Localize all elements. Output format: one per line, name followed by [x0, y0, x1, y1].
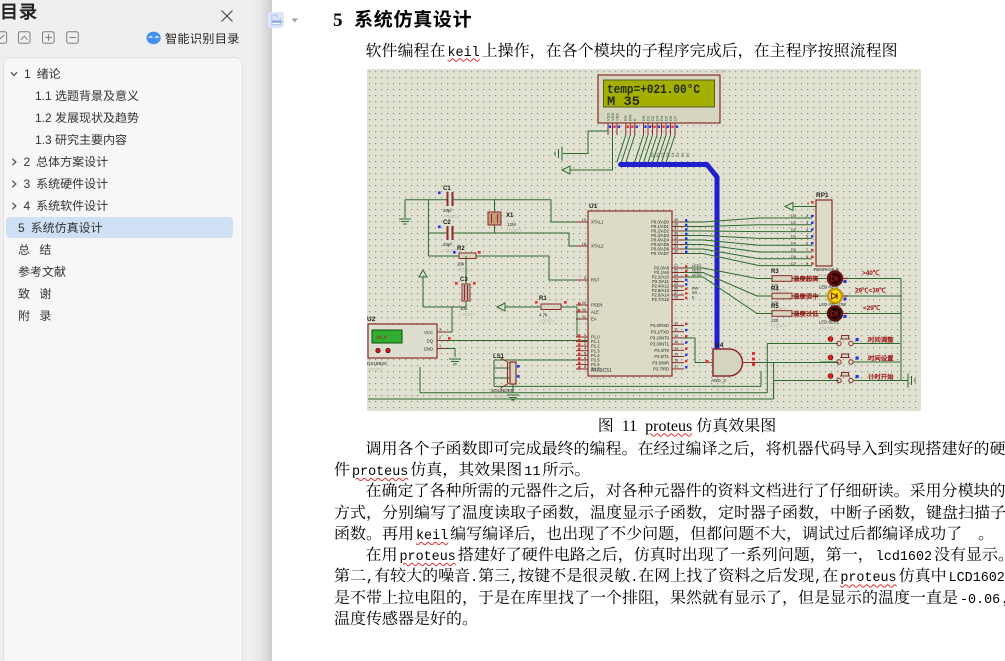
svg-text:10: 10	[674, 322, 678, 326]
svg-text:220: 220	[771, 318, 779, 323]
svg-text:21: 21	[674, 264, 678, 268]
svg-text:R3: R3	[771, 269, 779, 275]
svg-text:P3.3/INT1: P3.3/INT1	[650, 342, 670, 347]
svg-text:P3.5/T1: P3.5/T1	[654, 354, 669, 359]
svg-text:17: 17	[674, 365, 678, 369]
svg-text:EA: EA	[591, 317, 597, 322]
svg-text:R2: R2	[457, 246, 465, 252]
svg-text:RST: RST	[591, 278, 600, 283]
svg-text:C3: C3	[460, 277, 468, 283]
svg-text:<TEXT>: <TEXT>	[493, 394, 509, 399]
svg-text:11: 11	[674, 328, 678, 332]
svg-text:D0: D0	[651, 153, 655, 157]
svg-text:LED2: LED2	[692, 269, 702, 273]
svg-text:P3.2/INT0: P3.2/INT0	[650, 336, 670, 341]
svg-text:时间调整: 时间调整	[868, 336, 894, 344]
svg-text:P3.4/T0: P3.4/T0	[654, 348, 669, 353]
svg-text:VEE: VEE	[614, 113, 619, 121]
svg-text:2: 2	[439, 336, 441, 340]
svg-text:U1: U1	[589, 203, 598, 210]
svg-text:27: 27	[674, 291, 678, 295]
svg-text:9: 9	[806, 262, 808, 266]
svg-text:4: 4	[584, 347, 586, 351]
svg-text:15: 15	[674, 353, 678, 357]
svg-text:<TEXT>: <TEXT>	[539, 319, 555, 324]
svg-text:<29℃: <29℃	[863, 304, 881, 312]
svg-text:>40℃: >40℃	[862, 269, 880, 277]
svg-text:D3: D3	[666, 153, 670, 157]
svg-text:2: 2	[584, 338, 586, 342]
svg-text:<TEXT>: <TEXT>	[771, 324, 787, 329]
svg-text:E: E	[632, 118, 637, 121]
svg-text:温度超高: 温度超高	[793, 275, 819, 283]
svg-text:7: 7	[584, 360, 586, 364]
svg-text:D5: D5	[791, 248, 796, 252]
svg-text:18: 18	[582, 242, 586, 246]
svg-text:D2: D2	[791, 228, 796, 232]
svg-text:LED3: LED3	[692, 273, 702, 277]
svg-text:C1: C1	[443, 186, 451, 192]
svg-text:6: 6	[806, 241, 808, 245]
svg-text:P3.6/WR: P3.6/WR	[652, 360, 669, 365]
svg-text:RS: RS	[692, 291, 698, 295]
svg-text:10k: 10k	[457, 262, 465, 267]
svg-text:P3.0/RXD: P3.0/RXD	[650, 323, 669, 328]
svg-text:P2.7/A15: P2.7/A15	[652, 297, 670, 302]
svg-text:1: 1	[807, 202, 809, 206]
svg-text:16: 16	[674, 359, 678, 363]
svg-text:RW: RW	[692, 287, 699, 291]
svg-text:XTAL2: XTAL2	[591, 244, 604, 249]
svg-text:D6: D6	[791, 255, 796, 259]
svg-text:12: 12	[674, 334, 678, 338]
svg-text:P1.7: P1.7	[591, 367, 600, 372]
svg-text:D3: D3	[791, 235, 796, 239]
svg-text:<TEXT>: <TEXT>	[711, 384, 727, 389]
svg-text:34: 34	[674, 241, 678, 245]
svg-text:PSEN: PSEN	[591, 303, 602, 308]
svg-text:37: 37	[674, 227, 678, 231]
svg-text:9: 9	[584, 276, 586, 280]
svg-text:D7: D7	[672, 115, 677, 121]
svg-text:M 35: M 35	[607, 95, 640, 109]
svg-text:36: 36	[674, 232, 678, 236]
svg-text:U2: U2	[367, 316, 376, 323]
svg-text:ALE: ALE	[591, 310, 599, 315]
svg-text:LED-BLUE: LED-BLUE	[819, 320, 840, 325]
svg-text:X1: X1	[506, 213, 514, 219]
svg-text:VCC: VCC	[424, 330, 433, 335]
svg-text:3: 3	[584, 342, 586, 346]
svg-text:33: 33	[674, 245, 678, 249]
svg-text:D7: D7	[686, 153, 690, 157]
svg-text:5: 5	[806, 235, 808, 239]
svg-text:8: 8	[584, 365, 586, 369]
svg-text:19: 19	[582, 218, 586, 222]
svg-text:2: 2	[806, 214, 808, 218]
svg-text:20pf: 20pf	[443, 208, 452, 213]
svg-text:<TEXT>: <TEXT>	[443, 214, 459, 219]
svg-text:39: 39	[674, 218, 678, 222]
svg-text:温度过低: 温度过低	[793, 310, 819, 318]
svg-text:3: 3	[806, 221, 808, 225]
svg-text:温度适中: 温度适中	[793, 292, 819, 301]
svg-text:13: 13	[674, 340, 678, 344]
svg-text:D4: D4	[791, 241, 796, 245]
svg-text:D0: D0	[791, 214, 796, 218]
svg-text:R4: R4	[771, 287, 779, 293]
svg-text:D2: D2	[661, 153, 665, 157]
svg-text:D1: D1	[791, 221, 796, 225]
svg-text:LS1: LS1	[493, 354, 505, 360]
svg-text:<TEXT>: <TEXT>	[460, 312, 476, 317]
svg-text:23: 23	[674, 273, 678, 277]
svg-text:24: 24	[674, 278, 678, 282]
svg-text:7: 7	[806, 248, 808, 252]
svg-text:20pf: 20pf	[443, 242, 452, 247]
svg-text:时间设置: 时间设置	[868, 355, 894, 363]
svg-text:.12M: .12M	[506, 222, 516, 227]
svg-text:29: 29	[582, 301, 586, 305]
svg-text:10u: 10u	[460, 306, 468, 311]
svg-text:DQ: DQ	[427, 339, 434, 344]
svg-text:6: 6	[584, 356, 586, 360]
svg-text:<TEXT>: <TEXT>	[506, 228, 522, 233]
svg-text:25: 25	[674, 282, 678, 286]
svg-text:SOUNDER: SOUNDER	[491, 388, 515, 393]
svg-text:P3.1/TXD: P3.1/TXD	[651, 329, 669, 334]
svg-text:<TEXT>: <TEXT>	[591, 376, 607, 381]
svg-text:4.7k: 4.7k	[539, 313, 548, 318]
svg-text:AND_3: AND_3	[711, 378, 726, 383]
svg-text:<TEXT>: <TEXT>	[819, 326, 835, 331]
svg-text:3: 3	[439, 328, 441, 332]
svg-text:29℃<39℃: 29℃<39℃	[855, 287, 886, 295]
svg-text:GND: GND	[424, 347, 433, 352]
svg-text:28.0: 28.0	[376, 335, 387, 341]
svg-text:5: 5	[584, 351, 586, 355]
svg-text:P0.7/AD7: P0.7/AD7	[651, 251, 670, 256]
svg-text:1: 1	[439, 344, 441, 348]
svg-text:22: 22	[674, 269, 678, 273]
svg-text:LED1: LED1	[692, 264, 702, 268]
svg-text:31: 31	[582, 315, 586, 319]
svg-text:R5: R5	[771, 304, 779, 310]
svg-text:P3.7/RD: P3.7/RD	[653, 367, 669, 372]
svg-text:D1: D1	[656, 153, 660, 157]
svg-text:4: 4	[806, 228, 808, 232]
svg-text:D6: D6	[681, 153, 685, 157]
svg-text:38: 38	[674, 223, 678, 227]
svg-text:XTAL1: XTAL1	[591, 220, 604, 225]
svg-text:U4: U4	[715, 342, 724, 349]
svg-text:D5: D5	[676, 153, 680, 157]
svg-text:8: 8	[806, 255, 808, 259]
svg-text:26: 26	[674, 287, 678, 291]
svg-text:计时开始: 计时开始	[868, 373, 894, 381]
svg-text:D4: D4	[671, 153, 675, 157]
svg-text:35: 35	[674, 236, 678, 240]
svg-text:<TEXT>: <TEXT>	[457, 268, 473, 273]
svg-text:<TEXT>: <TEXT>	[367, 367, 383, 372]
svg-text:28: 28	[674, 296, 678, 300]
svg-text:32: 32	[674, 250, 678, 254]
svg-text:DS18B20: DS18B20	[367, 361, 387, 366]
svg-text:R1: R1	[539, 296, 547, 302]
svg-text:D7: D7	[791, 262, 796, 266]
svg-text:1: 1	[584, 333, 586, 337]
svg-text:14: 14	[674, 346, 678, 350]
svg-text:30: 30	[582, 308, 586, 312]
svg-text:<TEXT>: <TEXT>	[711, 69, 727, 74]
svg-text:RP1: RP1	[816, 192, 829, 199]
svg-text:C2: C2	[443, 220, 451, 226]
